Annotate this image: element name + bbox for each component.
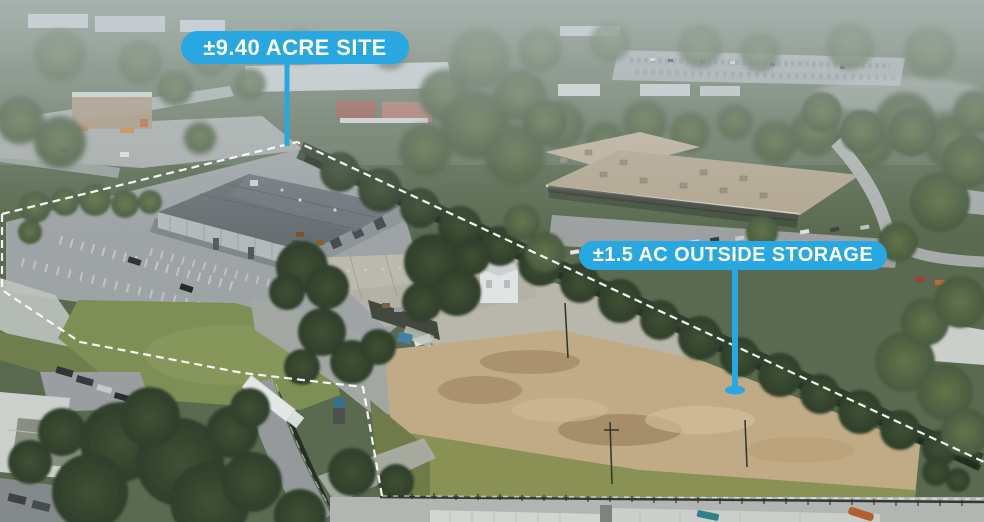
site-area-callout: ±9.40 ACRE SITE — [181, 31, 409, 64]
site-area-callout-text: ±9.40 ACRE SITE — [203, 35, 387, 61]
aerial-property-photo: ±9.40 ACRE SITE ±1.5 AC OUTSIDE STORAGE — [0, 0, 984, 522]
outside-storage-callout: ±1.5 AC OUTSIDE STORAGE — [579, 241, 887, 270]
outside-storage-callout-text: ±1.5 AC OUTSIDE STORAGE — [593, 244, 873, 267]
